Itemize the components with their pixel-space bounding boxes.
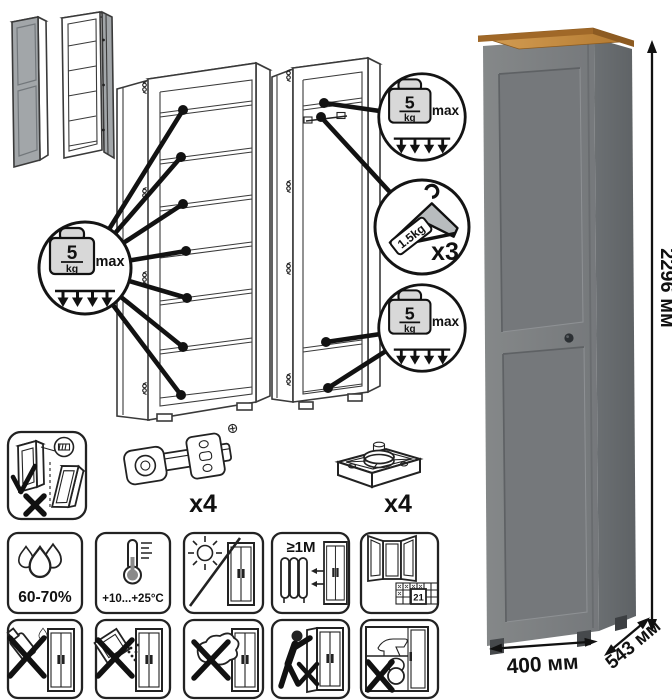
hanger-load-badge: 1.5kg x3 <box>375 180 469 274</box>
product-photo <box>478 28 636 655</box>
no-liquid-icon <box>4 620 82 698</box>
height-label: 2296 мм <box>656 248 672 328</box>
distance-label: ≥1M <box>286 539 315 556</box>
foot-count: x4 <box>384 490 412 518</box>
top-shelf-load-badge <box>379 74 465 160</box>
ventilation-icon: 21 <box>361 533 438 613</box>
shelf-load-badge <box>39 222 131 314</box>
hanger-count: x3 <box>431 238 459 266</box>
no-hanging-on-door-icon <box>272 620 349 698</box>
anti-tip-icon <box>8 432 86 519</box>
hinge-count: x4 <box>189 490 217 518</box>
shelf-cabinet-drawing <box>117 63 270 421</box>
no-wet-cloth-icon <box>184 620 263 698</box>
mini-wardrobe-open <box>62 12 114 158</box>
wardrobe-side <box>594 38 636 631</box>
diagram-canvas: 5 kg max <box>0 0 672 700</box>
mini-wardrobe-closed <box>12 17 48 167</box>
heat-distance-icon: ≥1M <box>272 533 349 613</box>
no-heavy-load-icon <box>361 620 438 698</box>
no-abrasive-icon <box>95 620 170 698</box>
vent-day-label: 21 <box>413 593 424 604</box>
temperature-label: +10...+25°C <box>102 593 164 605</box>
instruction-sheet: 5 kg max <box>0 0 672 700</box>
humidity-icon: 60-70% <box>8 533 82 613</box>
humidity-label: 60-70% <box>18 589 72 606</box>
window-icon <box>368 536 416 581</box>
bottom-shelf-load-badge <box>379 285 465 371</box>
temperature-icon: +10...+25°C <box>96 533 170 613</box>
door-knob <box>564 333 573 342</box>
radiator-icon <box>281 558 307 603</box>
no-sunlight-icon <box>184 533 263 613</box>
